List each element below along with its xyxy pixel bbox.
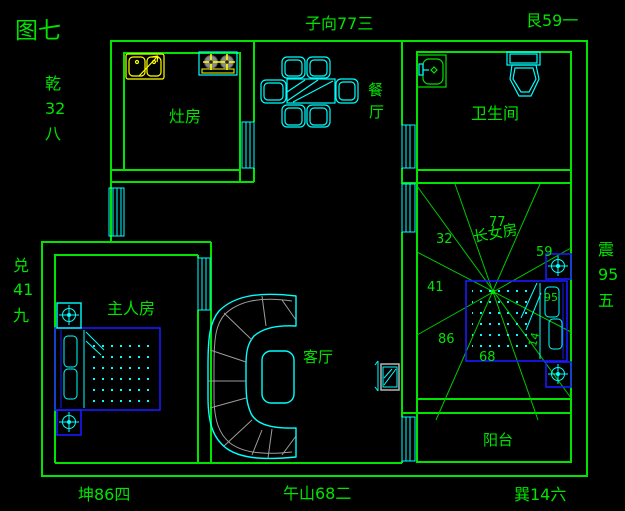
star-number-ne: 59 — [536, 245, 553, 260]
compass-label-kun: 坤86四 — [78, 485, 130, 504]
compass-label-gen: 艮59一 — [526, 11, 578, 30]
star-number-e: 95 — [544, 291, 558, 304]
floorplan-drawing: 图七 乾 32 八 子向77三 艮59一 兑 41 九 震 95 五 坤86四 … — [0, 0, 625, 511]
bathroom-daughter-wall — [402, 170, 571, 183]
sitting-label: 午山68二 — [283, 484, 351, 503]
door-kitchen-dining — [242, 122, 254, 168]
compass-number-32: 32 — [45, 99, 65, 118]
facing-label: 子向77三 — [305, 14, 373, 33]
chair-icon — [261, 80, 286, 103]
master-bed-icon — [55, 328, 160, 410]
sofa-icon — [208, 294, 296, 458]
compass-label-zhen: 震 — [598, 240, 614, 259]
nightstand-lamp-icon — [57, 303, 81, 328]
room-label-living: 客厅 — [303, 348, 333, 366]
room-label-bathroom: 卫生间 — [471, 104, 519, 123]
stove-icon — [199, 52, 237, 75]
compass-label-wu: 五 — [598, 291, 614, 310]
chair-icon — [336, 79, 358, 103]
bathroom-sink-icon — [417, 55, 446, 87]
daughter-balcony-wall — [402, 399, 571, 413]
door-living-balcony — [402, 417, 415, 461]
compass-label-xun: 巽14六 — [514, 485, 566, 504]
star-number-nw: 32 — [436, 232, 453, 247]
compass-label-ba: 八 — [45, 124, 61, 143]
nightstand-lamp-icon — [57, 410, 81, 435]
room-label-balcony: 阳台 — [483, 431, 513, 449]
room-label-kitchen: 灶房 — [169, 107, 201, 126]
compass-label-dui: 兑 — [13, 256, 29, 275]
compass-number-95: 95 — [598, 265, 618, 284]
chair-icon — [307, 105, 330, 127]
chair-icon — [307, 57, 330, 78]
kitchen-sink-icon — [126, 54, 164, 79]
room-label-dining-2: 厅 — [369, 103, 384, 121]
compass-number-41: 41 — [13, 280, 33, 299]
star-number-sw: 86 — [438, 332, 455, 347]
cad-floorplan-canvas[interactable]: 图七 乾 32 八 子向77三 艮59一 兑 41 九 震 95 五 坤86四 … — [0, 0, 625, 511]
room-label-dining-1: 餐 — [368, 81, 383, 99]
door-hall-daughter-room — [402, 184, 415, 232]
compass-label-jiu: 九 — [13, 306, 29, 325]
star-number-n: 77 — [489, 215, 506, 230]
nightstand-lamp-icon — [546, 362, 571, 387]
window-master-room — [198, 258, 210, 310]
star-number-w: 41 — [427, 280, 444, 295]
chair-icon — [282, 57, 305, 78]
tv-icon — [375, 361, 399, 391]
chair-icon — [282, 105, 305, 127]
coffee-table-icon — [262, 351, 294, 403]
toilet-icon — [507, 52, 540, 96]
window-dining-bathroom — [402, 125, 415, 168]
compass-label-qian: 乾 — [45, 74, 61, 93]
dining-chairs — [261, 57, 358, 127]
figure-title: 图七 — [15, 18, 61, 44]
star-number-s: 68 — [479, 350, 496, 365]
dining-table-icon — [287, 79, 335, 103]
room-label-master: 主人房 — [107, 299, 155, 318]
